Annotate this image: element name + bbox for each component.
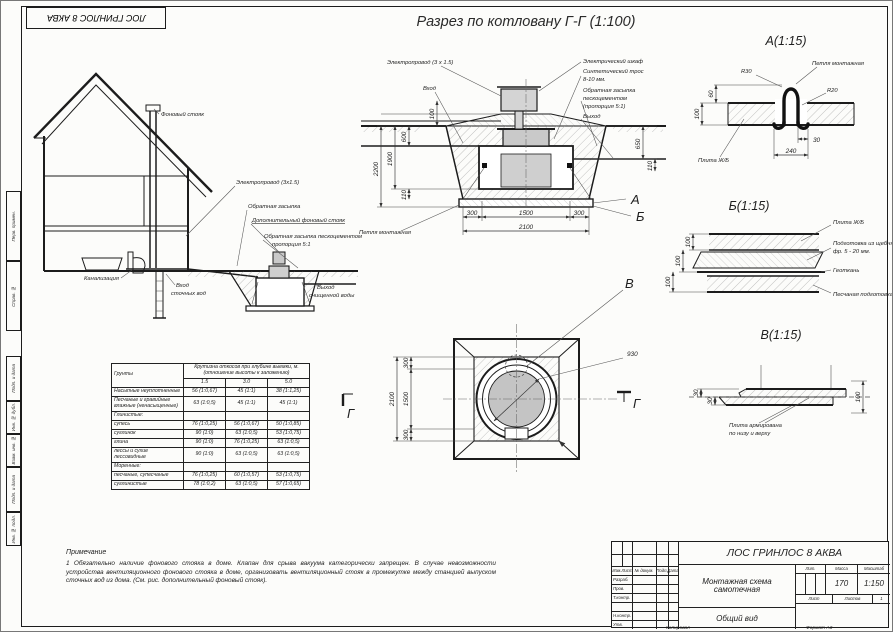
- table-row: суглинок90 (1:0)63 (1:0,5)53 (1:0,75): [112, 429, 310, 438]
- soil-type-cell: суглинок: [112, 429, 184, 438]
- table-row: суглинистые78 (1:0,2)63 (1:0,5)57 (1:0,6…: [112, 480, 310, 489]
- plan-geometry: [443, 324, 618, 474]
- plan-dim-2100: 2100: [389, 391, 396, 407]
- slope-value-cell: 63 (1:0,5): [226, 429, 268, 438]
- dim-300-right: 300: [574, 210, 585, 217]
- table-row: супесь76 (1:0,25)56 (1:0,67)50 (1:0,85): [112, 420, 310, 429]
- label-pit-cable: Электропровод (3 х 1.5): [387, 60, 453, 66]
- dim-100: 100: [429, 108, 436, 119]
- tb-lit-1: [795, 573, 805, 594]
- detail-a-dim-240: 240: [785, 148, 797, 155]
- side-stamp-podp-data-2: Подп. и дата: [6, 467, 21, 512]
- plan-dim-1500: 1500: [403, 391, 410, 406]
- label-pit-backfill-1: Обратная засыпка: [583, 88, 636, 94]
- plan-dim-300-bottom: 300: [403, 429, 410, 440]
- plan-dim-300-top: 300: [403, 357, 410, 368]
- label-house-cable: Электропровод (3х1.5): [236, 180, 299, 186]
- pit-plan-drawing: 300 1500 300 2100 930 В Г Г: [331, 266, 651, 481]
- notes-block: Примечание 1 Обязательно наличие фоновог…: [66, 549, 496, 586]
- slope-value-cell: 63 (1:0,5): [226, 447, 268, 462]
- detail-a-dim-100: 100: [694, 108, 701, 119]
- table-row: песчаные, супесчаные76 (1:0,25)60 (1:0,5…: [112, 471, 310, 480]
- depth-header-15: 1.5: [184, 378, 226, 387]
- tb-lit-2: [805, 573, 815, 594]
- copied-label: Копировал: [666, 626, 690, 631]
- soil-type-cell: песчаные, супесчаные: [112, 471, 184, 480]
- slope-value-cell: [226, 462, 268, 471]
- tb-razrab: Разраб.: [613, 576, 632, 584]
- detail-a-r30: R30: [741, 69, 752, 75]
- tb-prov: Пров.: [613, 585, 632, 593]
- detail-v-note-2: по низу и верху: [729, 431, 771, 437]
- detail-b-gravel-1: Подготовка из щебня: [833, 241, 893, 247]
- tb-h-mass: Масса: [825, 564, 857, 573]
- tb-doc-line2: самотечная: [714, 586, 760, 594]
- soil-type-cell: супесь: [112, 420, 184, 429]
- detail-v-dim-30a: 30: [693, 389, 700, 397]
- table-row: Моренные:: [112, 462, 310, 471]
- table-row: Насыпные неуплотненные56 (1:0,67)45 (1:1…: [112, 387, 310, 396]
- detail-a-loop-label: Петля монтажная: [812, 61, 864, 67]
- callout-a: А: [630, 192, 640, 207]
- label-vent-stack: Фоновый стояк: [161, 111, 204, 118]
- corner-designation-stamp: ЛОС ГРИНЛОС 8 АКВА: [26, 7, 166, 29]
- detail-a-dim-60: 60: [708, 90, 715, 98]
- detail-v-dim-30b: 30: [707, 397, 714, 405]
- side-stamp-perv-primen: Перв. примен.: [6, 191, 21, 261]
- detail-a-geometry: [728, 89, 854, 128]
- slope-value-cell: 76 (1:0,25): [226, 438, 268, 447]
- slope-value-cell: 45 (1:1): [226, 396, 268, 411]
- detail-v-drawing: В(1:15) 30 30 100 Плита армирована по ни…: [641, 317, 889, 447]
- tb-h-sheet: Лист: [795, 594, 832, 603]
- detail-b-slab-label: Плита Ж/Б: [833, 220, 864, 226]
- dim-1500: 1500: [519, 210, 534, 217]
- detail-a-drawing: А(1:15) 60 100 240 30 R30 R20 Петля монт…: [686, 29, 891, 181]
- label-inlet-2: сточных вод: [171, 291, 207, 297]
- detail-a-dim-30: 30: [813, 137, 821, 144]
- label-pit-inlet: Вход: [423, 86, 437, 92]
- dim-110-left: 110: [401, 189, 408, 200]
- detail-b-title: Б(1:15): [729, 199, 770, 213]
- table-row: лессы и сухие лессовидные90 (1:0)63 (1:0…: [112, 447, 310, 462]
- dim-600: 600: [401, 131, 408, 142]
- slope-value-cell: 63 (1:0,5): [268, 438, 310, 447]
- dim-110-right: 110: [647, 160, 654, 171]
- slope-value-cell: [184, 411, 226, 420]
- detail-v-note-1: Плита армирована: [729, 423, 783, 429]
- side-stamp-inv-dubl: Инв. № дубл.: [6, 401, 21, 434]
- soil-type-cell: Глинистые:: [112, 411, 184, 420]
- tb-line: [668, 542, 669, 629]
- section-mark-g-left: Г: [347, 406, 355, 421]
- tb-utv: Утв.: [613, 621, 632, 629]
- detail-b-sand-label: Песчаная подготовка: [833, 292, 893, 298]
- slope-value-cell: 50 (1:0,85): [268, 420, 310, 429]
- label-inlet-1: Вход: [176, 283, 190, 289]
- label-pit-outlet: Выход: [583, 114, 601, 120]
- tb-h-lit: Лит.: [795, 564, 825, 573]
- slope-value-cell: 60 (1:0,57): [226, 471, 268, 480]
- slope-value-cell: 53 (1:0,75): [268, 471, 310, 480]
- slope-value-cell: 63 (1:0,5): [268, 447, 310, 462]
- table-row: Песчаные и гравийные влажные (ненасыщенн…: [112, 396, 310, 411]
- label-mounting-loop: Петля монтажная: [359, 230, 411, 236]
- detail-v-dim-100: 100: [855, 391, 862, 402]
- label-extra-vent-stack: Дополнительный фоновый стояк: [251, 217, 345, 224]
- slope-value-cell: 56 (1:0,67): [184, 387, 226, 396]
- slope-value-cell: 90 (1:0): [184, 438, 226, 447]
- tb-line: [632, 542, 633, 629]
- drawing-sheet: ЛОС ГРИНЛОС 8 АКВА Перв. примен. Справ. …: [0, 0, 893, 632]
- depth-header-30: 3.0: [226, 378, 268, 387]
- callout-v: В: [625, 276, 634, 291]
- slope-value-cell: 45 (1:1): [226, 387, 268, 396]
- label-cement-backfill-2: пропорция 5:1: [272, 242, 311, 248]
- depth-header-50: 5.0: [268, 378, 310, 387]
- soil-slope-table: Грунты Крутизна откосов при глубине выем…: [111, 363, 310, 490]
- detail-v-geometry: [689, 365, 871, 405]
- tb-sheets-value: 1: [872, 594, 890, 603]
- slope-value-cell: 78 (1:0,2): [184, 480, 226, 489]
- tb-mass-value: 170: [825, 573, 857, 594]
- dim-2100: 2100: [518, 224, 534, 231]
- tb-product-name: ЛОС ГРИНЛОС 8 АКВА: [678, 542, 890, 564]
- detail-b-dim-2: 100: [675, 255, 682, 266]
- dim-650: 650: [635, 138, 642, 149]
- soil-type-cell: Песчаные и гравийные влажные (ненасыщенн…: [112, 396, 184, 411]
- tb-line: [612, 602, 678, 603]
- detail-b-dim-3: 100: [665, 276, 672, 287]
- table-header-row: Грунты Крутизна откосов при глубине выем…: [112, 364, 310, 379]
- label-cement-backfill-1: Обратная засыпка пескоцементом: [264, 234, 362, 240]
- slope-value-cell: 45 (1:1): [268, 396, 310, 411]
- soil-col-header: Грунты: [112, 364, 184, 388]
- slope-value-cell: [184, 462, 226, 471]
- detail-a-slab-label: Плита Ж/Б: [698, 158, 729, 164]
- detail-a-r20: R20: [827, 88, 838, 94]
- detail-v-title: В(1:15): [761, 328, 802, 342]
- dim-1900: 1900: [387, 151, 394, 166]
- drawing-title: Разрез по котловану Г-Г (1:100): [371, 14, 681, 30]
- tb-line: [656, 542, 657, 629]
- tb-scale-value: 1:150: [857, 573, 890, 594]
- detail-b-geo-label: Геоткань: [833, 268, 859, 274]
- table-row: Глинистые:: [112, 411, 310, 420]
- side-stamp-podp-data-1: Подп. и дата: [6, 356, 21, 401]
- soil-type-cell: лессы и сухие лессовидные: [112, 447, 184, 462]
- slope-value-cell: 53 (1:0,75): [268, 429, 310, 438]
- slope-value-cell: [268, 411, 310, 420]
- tb-tkontr: Т.контр.: [613, 594, 632, 602]
- dim-2200: 2200: [373, 161, 380, 177]
- tb-doc-name: Монтажная схема самотечная: [678, 564, 795, 607]
- slope-value-cell: 63 (1:0,5): [226, 480, 268, 489]
- corner-designation-text: ЛОС ГРИНЛОС 8 АКВА: [47, 13, 146, 23]
- side-stamp-sprav-no: Справ. №: [6, 261, 21, 331]
- table-row: глина90 (1:0)76 (1:0,25)63 (1:0,5): [112, 438, 310, 447]
- label-sewerage: Канализация: [84, 276, 119, 282]
- bathroom-fixtures: [82, 252, 145, 273]
- detail-b-dim-1: 100: [685, 236, 692, 247]
- side-stamp-inv-podl: Инв. № подл.: [6, 512, 21, 546]
- tb-view-name: Общий вид: [678, 607, 795, 629]
- vent-stack-pipe: [146, 105, 160, 268]
- tb-lit-3: [815, 573, 825, 594]
- detail-a-title: А(1:15): [765, 34, 807, 48]
- label-backfill: Обратная засыпка: [248, 204, 301, 210]
- section-mark-g-right: Г: [633, 396, 641, 411]
- tb-line: [612, 554, 678, 555]
- slope-value-cell: [226, 411, 268, 420]
- slope-value-cell: 57 (1:0,65): [268, 480, 310, 489]
- soil-type-cell: Моренные:: [112, 462, 184, 471]
- slope-value-cell: 38 (1:1,25): [268, 387, 310, 396]
- tb-h-scale: Масштаб: [857, 564, 890, 573]
- slope-value-cell: 90 (1:0): [184, 429, 226, 438]
- label-rope-1: Синтетический трос: [583, 68, 644, 75]
- label-pit-backfill-3: (пропорция 5:1): [583, 104, 626, 110]
- span-header: Крутизна откосов при глубине выемки, м. …: [184, 364, 310, 379]
- tb-h-data: Дата: [668, 567, 678, 575]
- slope-value-cell: 76 (1:0,25): [184, 471, 226, 480]
- house-section-drawing: Фоновый стояк Электропровод (3х1.5) Обра…: [26, 56, 361, 341]
- tb-h-list: Лист: [622, 567, 632, 575]
- side-stamp-vzam-inv: Взам. инв. №: [6, 434, 21, 467]
- notes-item-1: 1 Обязательно наличие фонового стояка в …: [66, 560, 496, 586]
- label-cabinet: Электрический шкаф: [583, 58, 643, 65]
- format-label: Формат А3: [806, 626, 832, 631]
- detail-b-geometry: [693, 234, 825, 292]
- soil-type-cell: Насыпные неуплотненные: [112, 387, 184, 396]
- label-rope-2: 8-10 мм.: [583, 77, 606, 83]
- detail-b-drawing: Б(1:15) 100 100 100 Плита Ж/Б Подготовка…: [641, 194, 889, 321]
- plan-dim-930: 930: [627, 351, 638, 358]
- dim-300-left: 300: [467, 210, 478, 217]
- slope-value-cell: 56 (1:0,67): [226, 420, 268, 429]
- title-block: Изм. Лист № докум. Подп. Дата Разраб. Пр…: [611, 541, 889, 628]
- slope-value-cell: 63 (1:0,5): [184, 396, 226, 411]
- slope-value-cell: 90 (1:0): [184, 447, 226, 462]
- tb-nkontr: Н.контр.: [613, 612, 632, 620]
- soil-type-cell: суглинистые: [112, 480, 184, 489]
- soil-type-cell: глина: [112, 438, 184, 447]
- slope-value-cell: 76 (1:0,25): [184, 420, 226, 429]
- slope-value-cell: [268, 462, 310, 471]
- tb-h-doc: № докум.: [632, 567, 656, 575]
- detail-b-gravel-2: фр. 5 - 20 мм.: [833, 249, 870, 255]
- notes-heading: Примечание: [66, 549, 496, 556]
- label-pit-backfill-2: пескоцементом: [583, 96, 627, 102]
- tb-h-sheets: Листов: [832, 594, 872, 603]
